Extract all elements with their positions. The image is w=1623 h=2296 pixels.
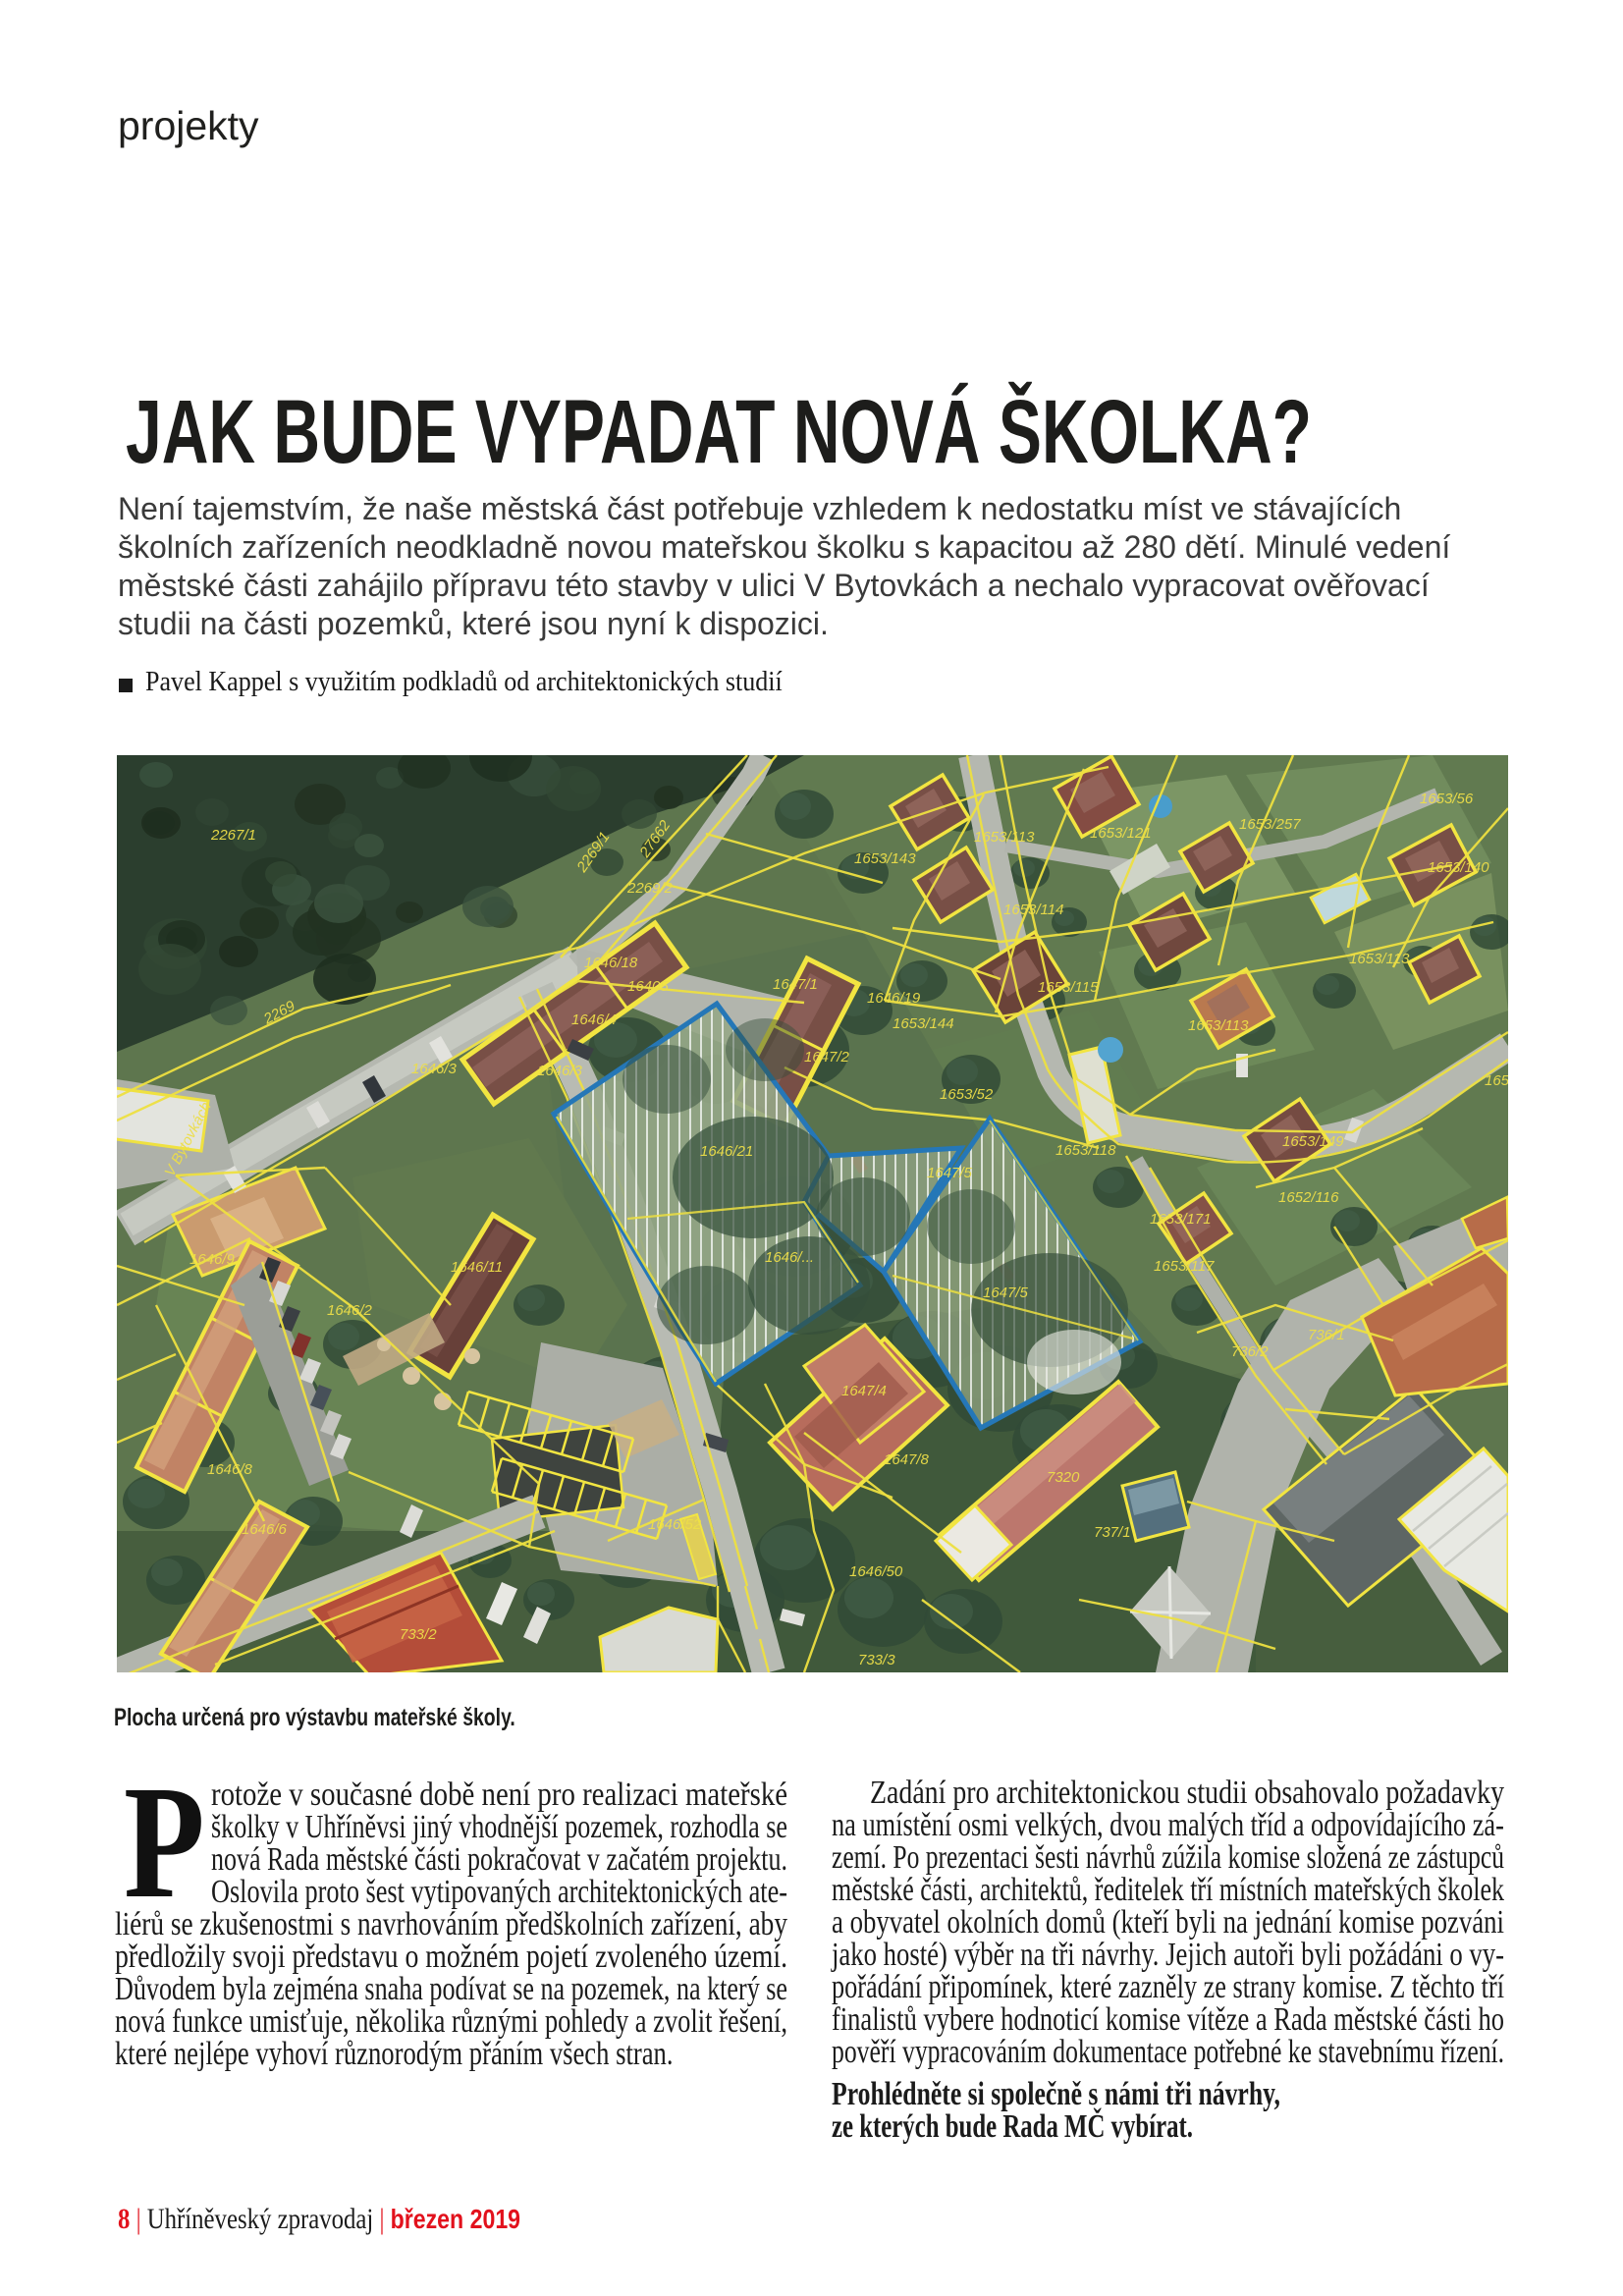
svg-text:733/2: 733/2: [400, 1626, 437, 1643]
svg-text:1646/18: 1646/18: [584, 955, 638, 971]
svg-text:1653/56: 1653/56: [1420, 791, 1474, 807]
svg-text:1653/171: 1653/171: [1150, 1211, 1212, 1228]
svg-text:733/3: 733/3: [858, 1652, 895, 1668]
svg-text:1647/4: 1647/4: [841, 1383, 887, 1399]
svg-text:1653/149: 1653/149: [1282, 1133, 1344, 1150]
svg-text:1653/257: 1653/257: [1239, 816, 1301, 833]
svg-text:16405: 16405: [627, 978, 669, 995]
svg-text:1653/113: 1653/113: [1349, 951, 1410, 967]
svg-text:1653/117: 1653/117: [1154, 1258, 1215, 1275]
svg-text:1653/52: 1653/52: [940, 1086, 994, 1103]
svg-text:1646/2: 1646/2: [327, 1302, 373, 1319]
svg-text:736/2: 736/2: [1231, 1343, 1269, 1360]
svg-text:1653/113: 1653/113: [1188, 1017, 1249, 1034]
svg-text:1653/118: 1653/118: [1055, 1142, 1116, 1159]
svg-text:2267/1: 2267/1: [210, 827, 256, 844]
svg-text:1653/115: 1653/115: [1038, 979, 1099, 996]
svg-text:1646/52: 1646/52: [648, 1516, 702, 1533]
svg-text:1652/116: 1652/116: [1278, 1189, 1339, 1206]
svg-text:1646/...: 1646/...: [765, 1249, 814, 1266]
svg-text:1647/5: 1647/5: [983, 1285, 1029, 1301]
svg-text:1646/6: 1646/6: [242, 1521, 288, 1538]
svg-text:737/1: 737/1: [1094, 1524, 1131, 1541]
svg-text:1646/11: 1646/11: [451, 1259, 503, 1276]
svg-text:736/1: 736/1: [1308, 1327, 1345, 1343]
svg-text:2269/2: 2269/2: [626, 880, 674, 897]
svg-text:1653/140: 1653/140: [1428, 859, 1489, 876]
svg-text:1647/2: 1647/2: [804, 1049, 850, 1066]
svg-text:1646/50: 1646/50: [849, 1563, 903, 1580]
svg-text:1653/144: 1653/144: [893, 1015, 954, 1032]
svg-text:1646/3: 1646/3: [537, 1063, 583, 1079]
svg-text:1653/264: 1653/264: [1485, 1072, 1508, 1089]
svg-text:1646/8: 1646/8: [207, 1461, 253, 1478]
svg-text:1646/21: 1646/21: [700, 1143, 753, 1160]
svg-text:7320: 7320: [1047, 1469, 1080, 1486]
svg-text:1653/121: 1653/121: [1090, 825, 1152, 842]
svg-text:1653/143: 1653/143: [854, 850, 916, 867]
svg-text:1653/113: 1653/113: [974, 829, 1035, 846]
svg-text:1646/19: 1646/19: [867, 990, 921, 1007]
svg-text:1653/114: 1653/114: [1003, 902, 1063, 918]
svg-text:1646/9: 1646/9: [189, 1251, 236, 1268]
svg-text:1647/5: 1647/5: [927, 1165, 973, 1181]
svg-text:1647/1: 1647/1: [773, 976, 818, 993]
svg-text:1646/4: 1646/4: [571, 1011, 617, 1028]
svg-text:1647/8: 1647/8: [884, 1451, 930, 1468]
svg-text:1646/3: 1646/3: [411, 1061, 458, 1077]
